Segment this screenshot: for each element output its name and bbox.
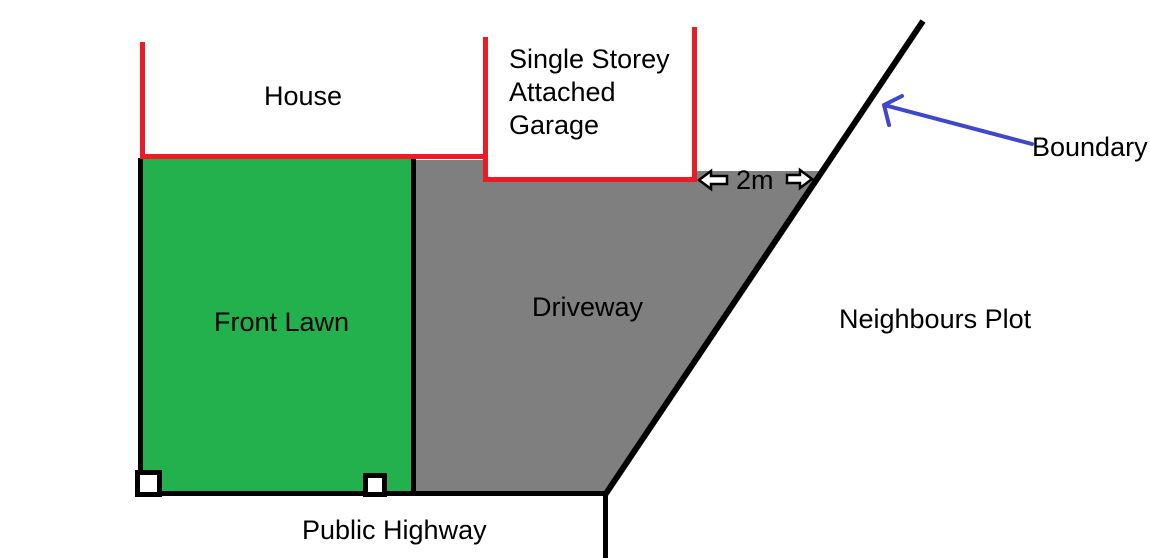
- right-angle-marker-right: [366, 476, 385, 495]
- boundary-callout-arrow-icon: [884, 96, 1032, 144]
- boundary-label: Boundary: [1032, 131, 1148, 164]
- plot-corner-vertical-line: [603, 493, 608, 558]
- garage-label: Single Storey Attached Garage: [509, 43, 670, 142]
- right-angle-marker-left: [138, 473, 160, 495]
- garage-label-line2: Attached: [509, 76, 670, 109]
- house-left-wall-line: [140, 42, 145, 158]
- garage-label-line3: Garage: [509, 109, 670, 142]
- driveway-label: Driveway: [532, 291, 643, 324]
- lawn-right-border-line: [411, 158, 416, 495]
- plot-plan-diagram: House Single Storey Attached Garage Fron…: [0, 0, 1150, 558]
- garage-label-line1: Single Storey: [509, 43, 670, 76]
- house-front-wall-line: [140, 154, 488, 159]
- public-highway-label: Public Highway: [302, 514, 487, 547]
- garage-left-wall-line: [483, 37, 488, 182]
- driveway-area: [414, 160, 821, 495]
- lawn-left-border-line: [138, 158, 143, 496]
- dimension-2m-label: 2m: [736, 164, 774, 197]
- house-label: House: [264, 80, 342, 113]
- garage-right-wall-line: [692, 27, 697, 182]
- neighbours-plot-label: Neighbours Plot: [839, 303, 1031, 336]
- garage-front-wall-line: [483, 177, 697, 182]
- front-lawn-label: Front Lawn: [214, 306, 349, 339]
